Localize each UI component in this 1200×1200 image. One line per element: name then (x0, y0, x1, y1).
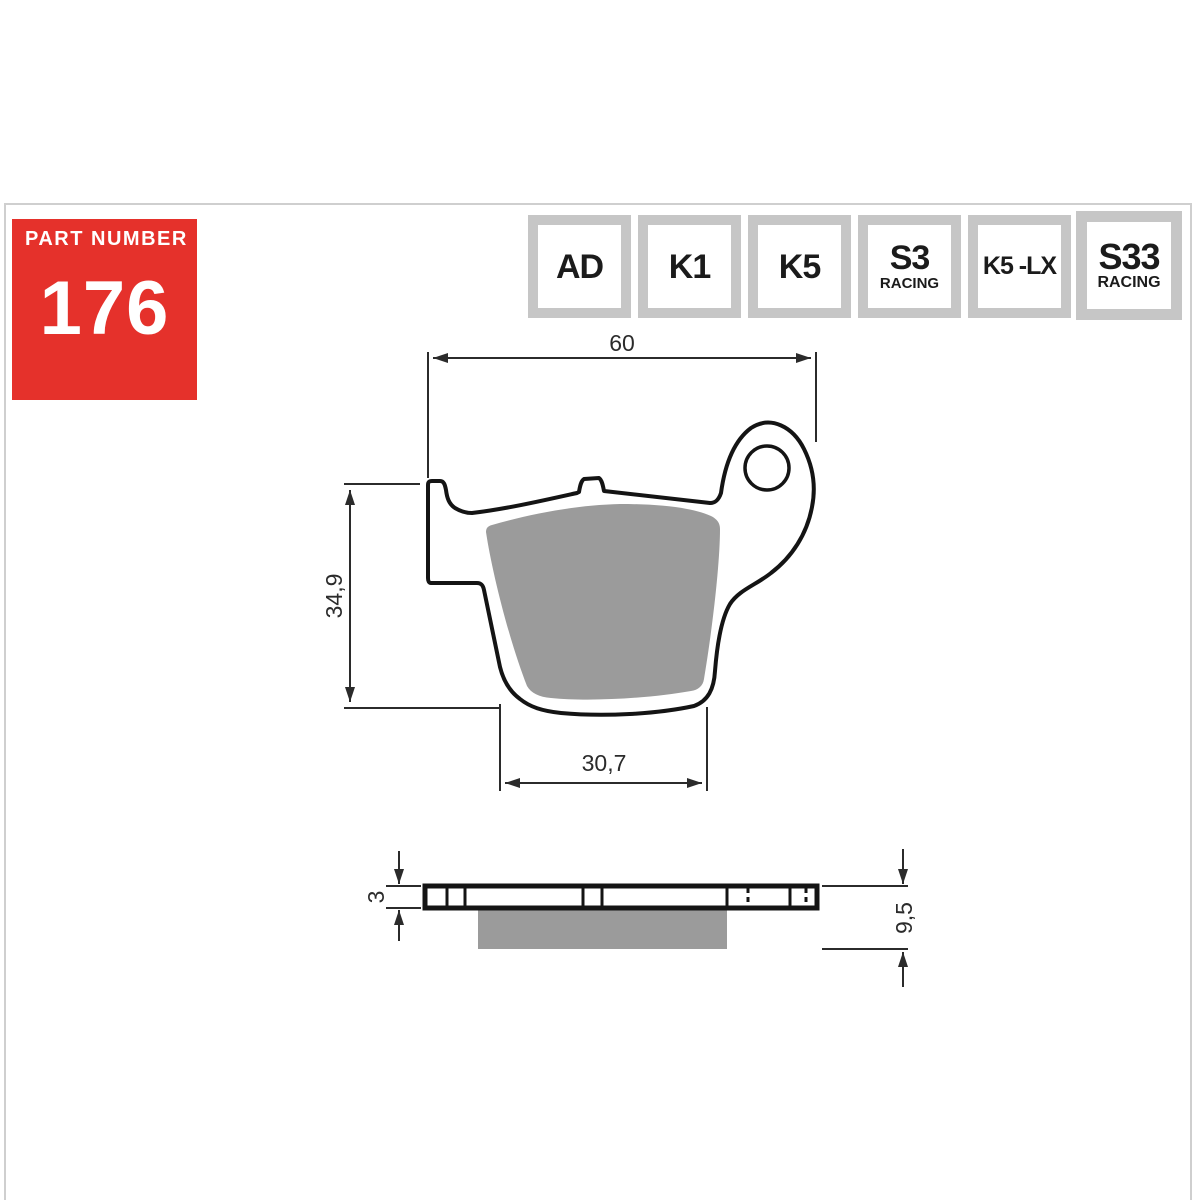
compound-sub-label: RACING (880, 276, 939, 292)
part-number-label: PART NUMBER (25, 228, 188, 251)
compound-main-label: K5 (779, 251, 820, 283)
catalog-page: 60 34,9 30,7 (0, 0, 1200, 1200)
compound-box-k1: K1 (638, 215, 741, 318)
dimension-label: 3 (363, 891, 389, 904)
compound-box-k5-lx: K5 -LX (968, 215, 1071, 318)
compound-box-s33-racing: S33 RACING (1076, 211, 1182, 320)
compound-box-k5: K5 (748, 215, 851, 318)
dimension-label: 9,5 (891, 902, 917, 934)
side-friction-material (478, 910, 727, 949)
compound-main-label: S3 (890, 242, 930, 274)
compound-main-label: K1 (669, 251, 710, 283)
dimension-overall-thickness: 9,5 (822, 849, 917, 987)
side-backing-plate (425, 886, 817, 908)
compound-main-label: S33 (1098, 241, 1159, 273)
compound-box-ad: AD (528, 215, 631, 318)
dimension-label: 30,7 (582, 750, 627, 776)
technical-drawing: 60 34,9 30,7 (0, 0, 1200, 1200)
compound-box-s3-racing: S3 RACING (858, 215, 961, 318)
dimension-label: 34,9 (321, 574, 347, 619)
compound-sub-label: RACING (1097, 275, 1160, 291)
dimension-label: 60 (609, 330, 635, 356)
mounting-hole (745, 446, 789, 490)
dimension-overall-height: 34,9 (321, 484, 500, 708)
part-number-value: 176 (12, 265, 197, 352)
pad-side-view (425, 886, 817, 949)
compound-main-label: AD (556, 251, 603, 283)
part-number-box: PART NUMBER 176 (12, 219, 197, 400)
friction-material (486, 504, 720, 700)
compound-main-label: K5 -LX (983, 254, 1056, 279)
pad-profile-view (428, 423, 814, 715)
dimension-pad-width: 30,7 (500, 704, 707, 791)
dimension-plate-thickness: 3 (363, 851, 421, 941)
